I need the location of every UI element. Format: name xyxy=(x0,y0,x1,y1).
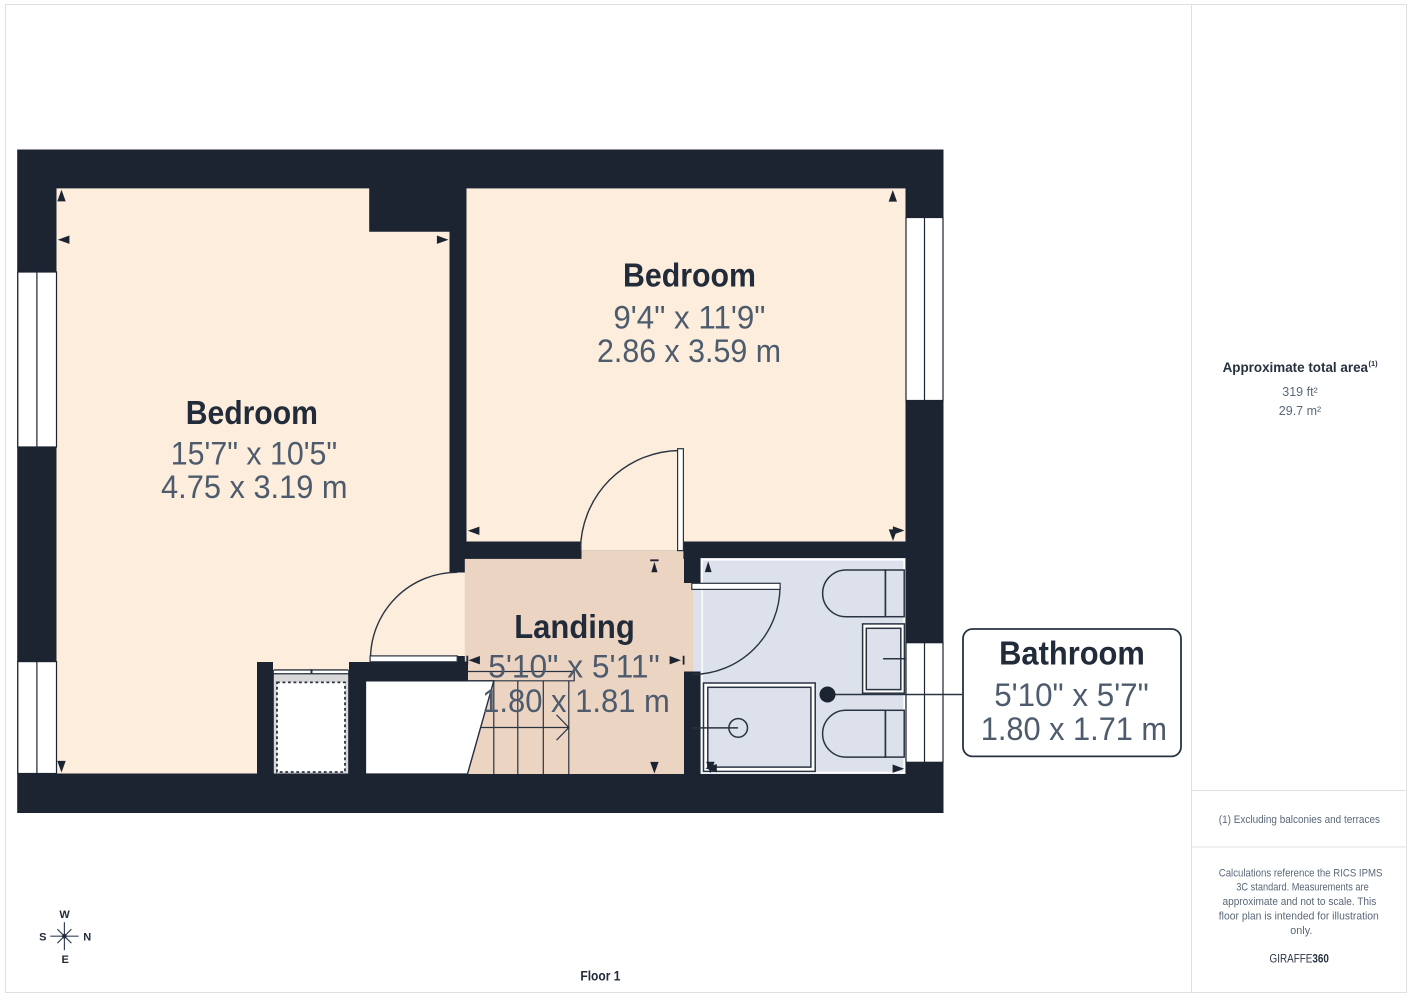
svg-text:only.: only. xyxy=(1290,925,1312,937)
svg-text:Landing: Landing xyxy=(514,609,635,646)
svg-text:Bedroom: Bedroom xyxy=(186,395,318,432)
svg-text:(1) Excluding balconies and te: (1) Excluding balconies and terraces xyxy=(1219,814,1381,826)
svg-text:4.75 x 3.19 m: 4.75 x 3.19 m xyxy=(161,469,348,505)
svg-text:Bedroom: Bedroom xyxy=(623,258,756,295)
svg-text:15'7" x 10'5": 15'7" x 10'5" xyxy=(171,436,337,472)
svg-text:29.7 m²: 29.7 m² xyxy=(1279,404,1321,418)
svg-text:3C standard. Measurements are: 3C standard. Measurements are xyxy=(1236,882,1369,894)
svg-text:Bathroom: Bathroom xyxy=(999,635,1145,672)
svg-text:W: W xyxy=(59,909,70,921)
svg-text:319 ft²: 319 ft² xyxy=(1282,385,1317,399)
svg-text:approximate and not to scale.: approximate and not to scale. This xyxy=(1223,896,1377,908)
svg-text:9'4" x 11'9": 9'4" x 11'9" xyxy=(613,300,765,336)
svg-text:1.80 x 1.71 m: 1.80 x 1.71 m xyxy=(981,711,1167,747)
svg-text:Floor 1: Floor 1 xyxy=(580,969,620,984)
svg-text:E: E xyxy=(62,954,69,966)
svg-text:1.80 x 1.81 m: 1.80 x 1.81 m xyxy=(482,683,670,719)
svg-text:5'10" x 5'11": 5'10" x 5'11" xyxy=(488,649,660,685)
svg-text:N: N xyxy=(83,932,91,944)
svg-text:GIRAFFE360: GIRAFFE360 xyxy=(1270,954,1329,966)
svg-text:(1): (1) xyxy=(1369,359,1379,368)
svg-text:Calculations reference the RIC: Calculations reference the RICS IPMS xyxy=(1219,867,1383,879)
svg-text:S: S xyxy=(39,932,46,944)
svg-text:2.86 x 3.59 m: 2.86 x 3.59 m xyxy=(597,333,781,369)
svg-text:Approximate total area: Approximate total area xyxy=(1223,360,1369,375)
svg-text:floor plan is intended for ill: floor plan is intended for illustration xyxy=(1219,911,1379,923)
svg-text:5'10" x 5'7": 5'10" x 5'7" xyxy=(994,677,1149,713)
